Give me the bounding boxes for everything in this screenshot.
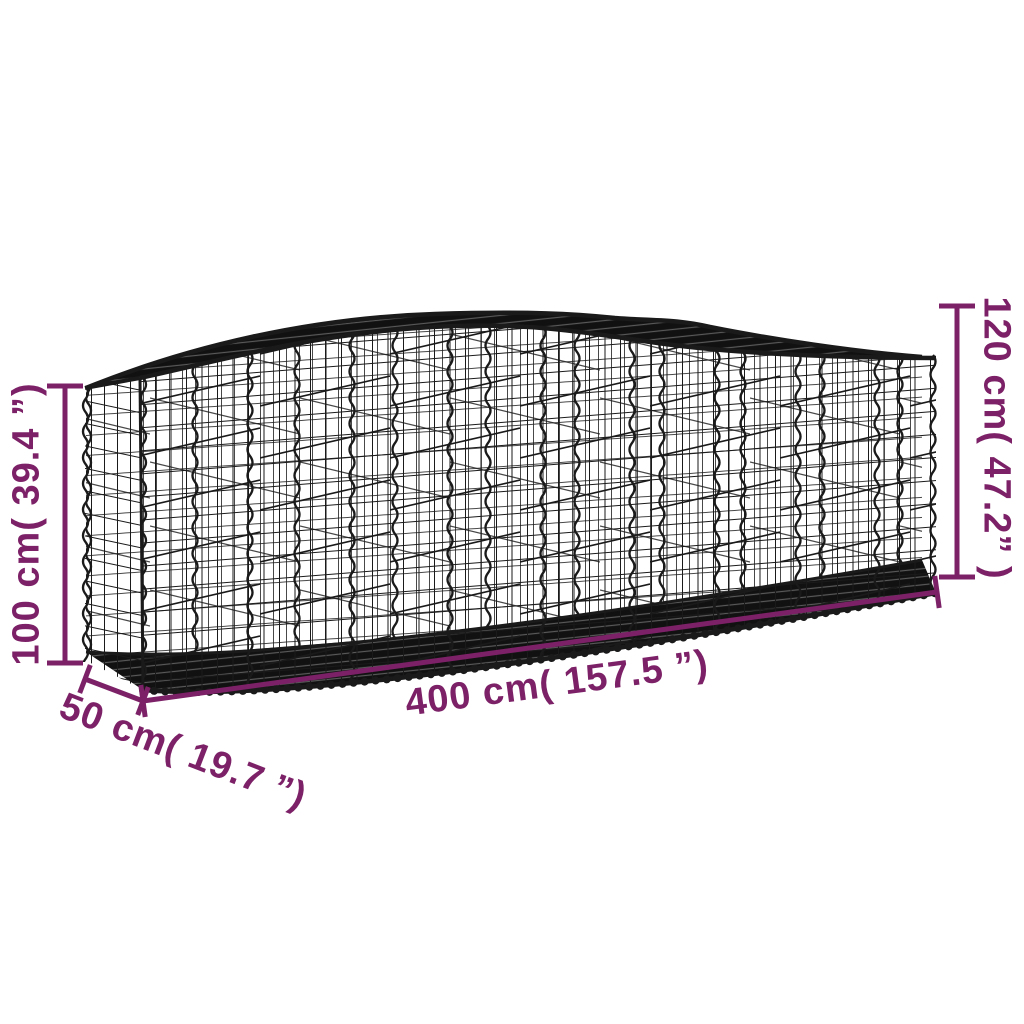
height-left-label: 100 cm( 39.4 ”) <box>6 382 49 665</box>
basket-end-face <box>80 370 148 700</box>
basket-front-face <box>130 300 942 716</box>
height-right-label: 120 cm( 47.2” ) <box>975 296 1018 579</box>
gabion-basket-illustration <box>0 0 1024 1024</box>
height-right-dimension-line <box>939 306 975 577</box>
dimension-diagram: 100 cm( 39.4 ”) 120 cm( 47.2” ) 400 cm( … <box>0 0 1024 1024</box>
height-left-dimension-line <box>47 386 83 663</box>
